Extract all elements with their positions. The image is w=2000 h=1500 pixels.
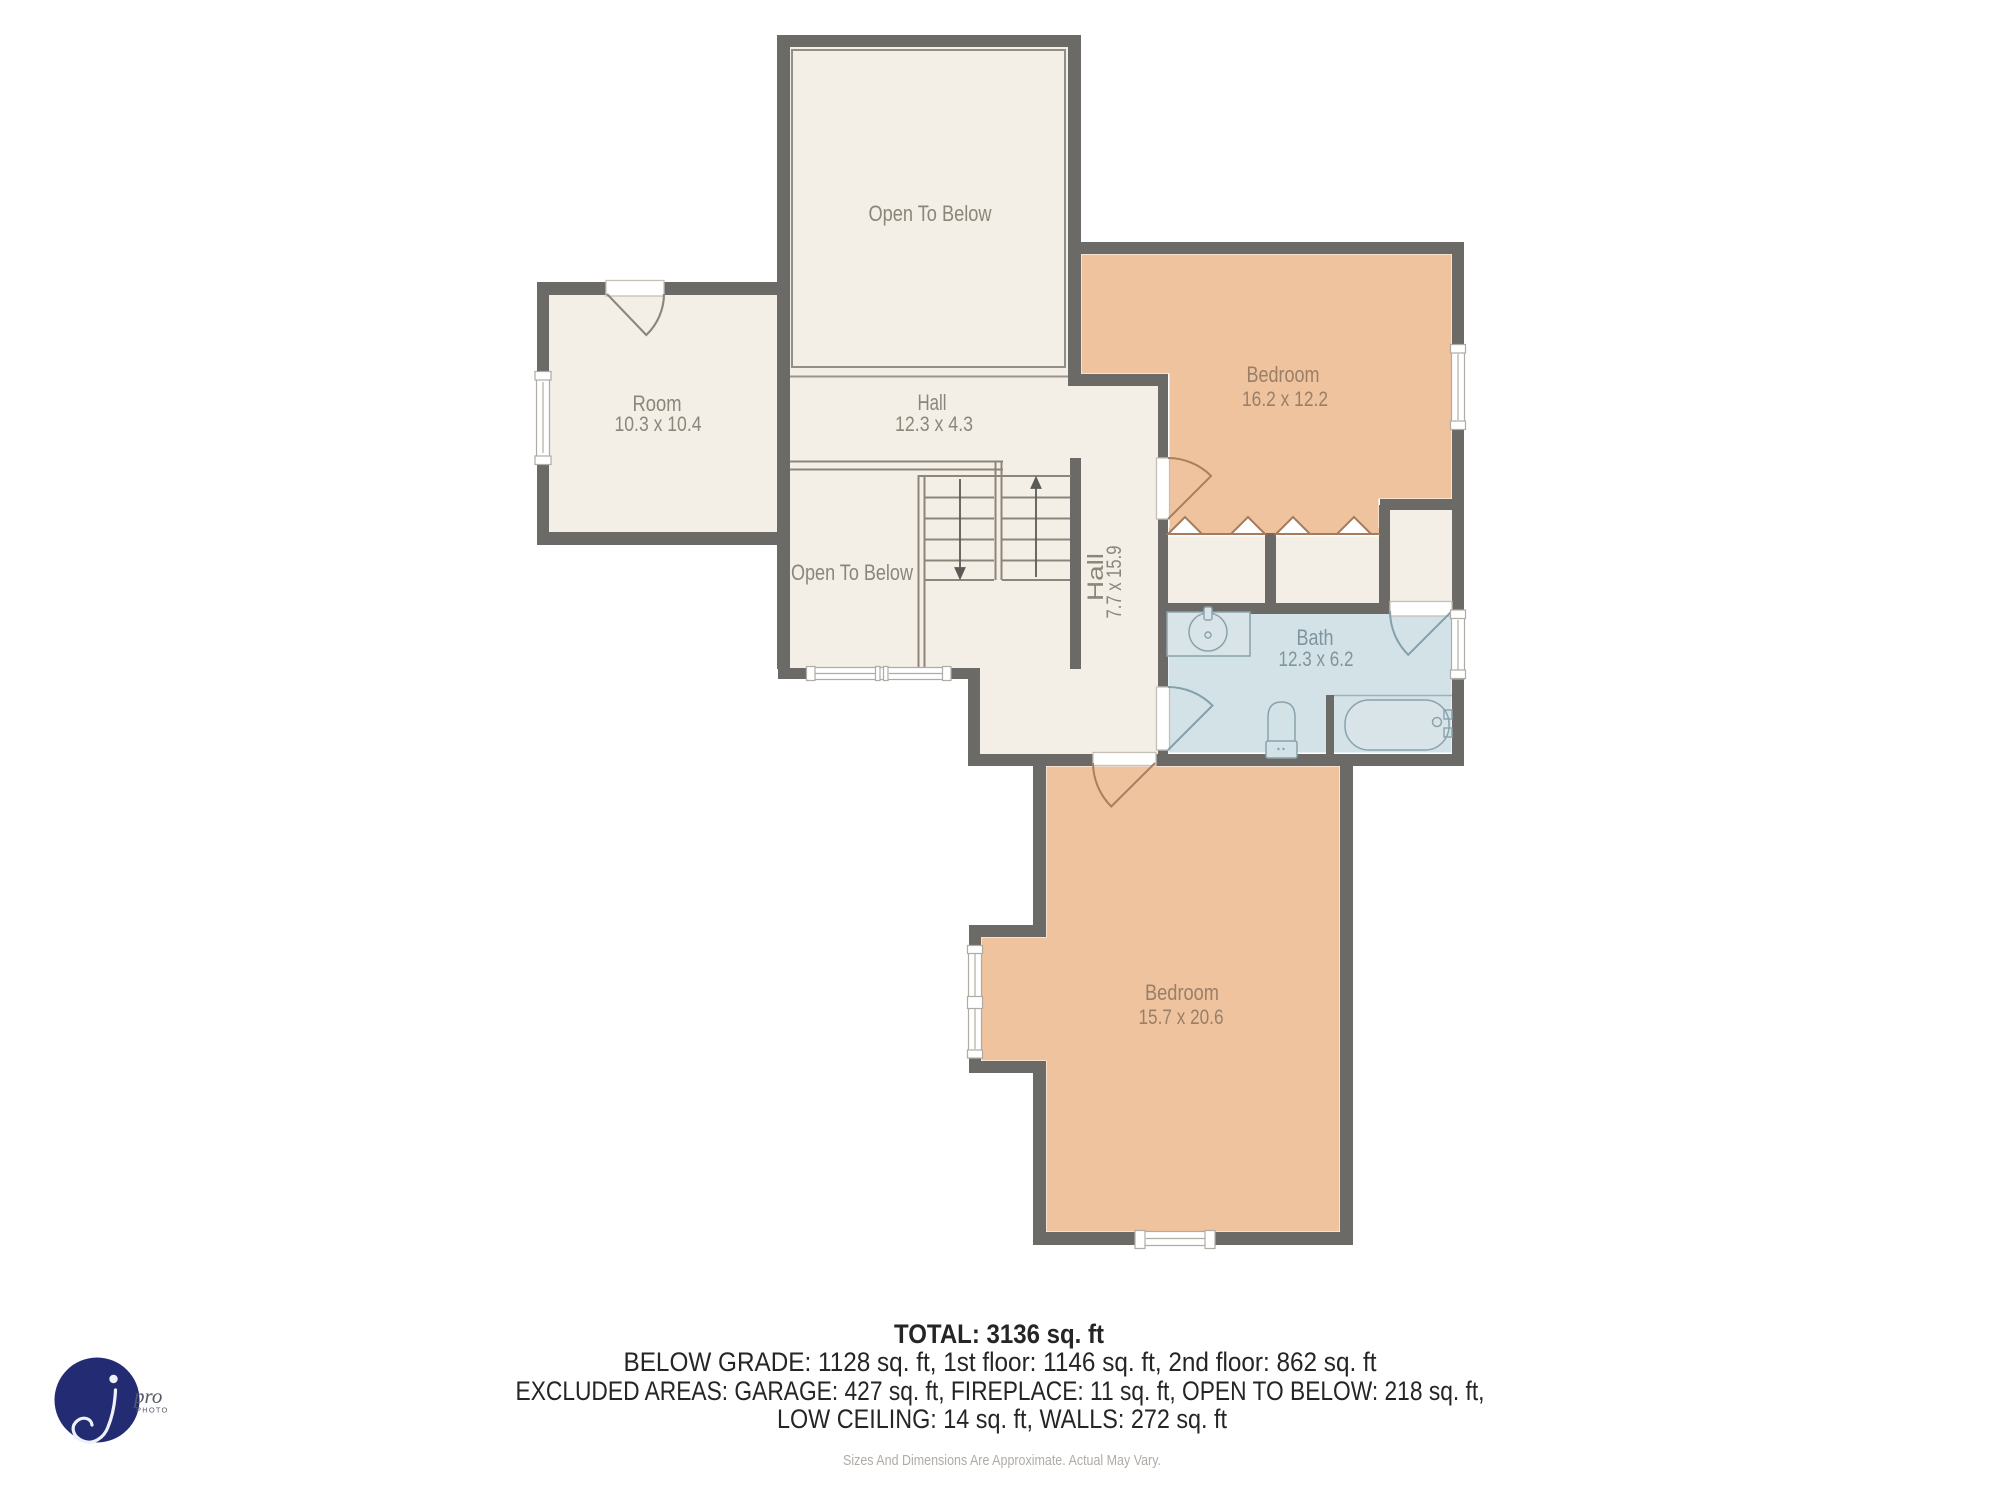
svg-text:Bedroom: Bedroom [1145,980,1219,1005]
svg-text:Bath: Bath [1297,625,1334,650]
svg-text:Sizes And Dimensions Are Appro: Sizes And Dimensions Are Approximate. Ac… [843,1452,1161,1469]
svg-text:EXCLUDED AREAS: GARAGE: 427 sq: EXCLUDED AREAS: GARAGE: 427 sq. ft, FIRE… [516,1376,1485,1406]
svg-text:Open To Below: Open To Below [869,201,992,226]
svg-text:12.3 x 4.3: 12.3 x 4.3 [895,413,973,436]
svg-text:Hall: Hall [918,390,947,415]
svg-text:Open To Below: Open To Below [791,560,913,585]
svg-text:Bedroom: Bedroom [1247,362,1320,387]
svg-text:16.2 x 12.2: 16.2 x 12.2 [1242,388,1328,411]
svg-text:12.3 x 6.2: 12.3 x 6.2 [1279,648,1354,671]
svg-text:BELOW GRADE: 1128 sq. ft, 1st: BELOW GRADE: 1128 sq. ft, 1st floor: 114… [624,1347,1377,1377]
svg-text:7.7 x 15.9: 7.7 x 15.9 [1103,546,1126,619]
svg-text:TOTAL: 3136 sq. ft: TOTAL: 3136 sq. ft [894,1319,1104,1349]
svg-text:PHOTO: PHOTO [136,1406,169,1415]
svg-text:10.3 x 10.4: 10.3 x 10.4 [615,413,702,436]
svg-text:15.7 x 20.6: 15.7 x 20.6 [1139,1006,1224,1029]
svg-text:pro: pro [132,1384,162,1408]
svg-text:LOW CEILING: 14 sq. ft, WALLS:: LOW CEILING: 14 sq. ft, WALLS: 272 sq. f… [777,1404,1227,1434]
